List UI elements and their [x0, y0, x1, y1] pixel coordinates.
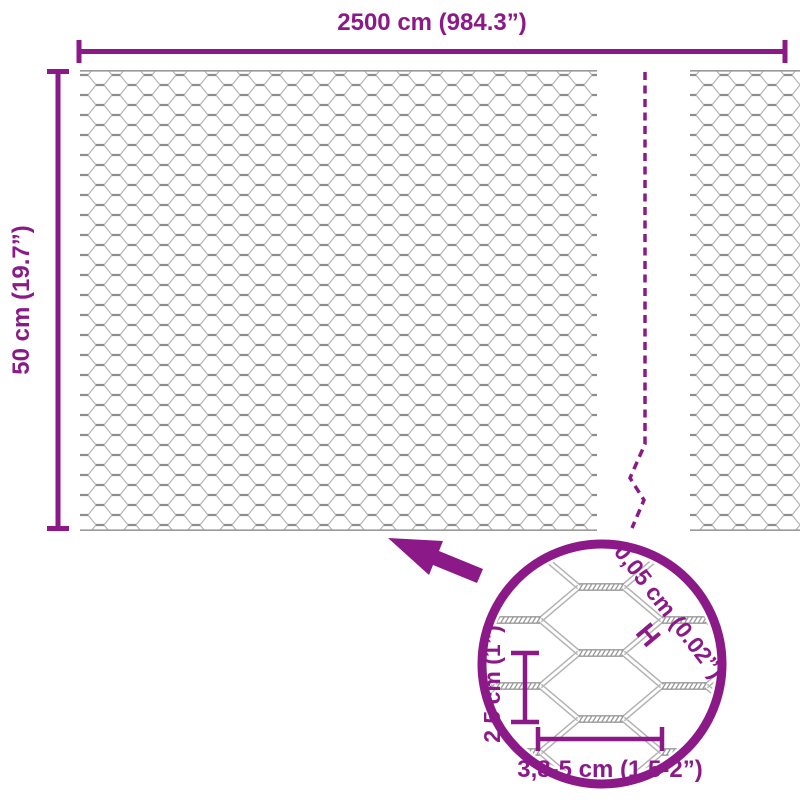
mesh-pitch-vertical-label: 2,5 cm (1”) [479, 625, 505, 743]
height-dimension-line [47, 71, 69, 529]
mesh-panel-continuation [690, 70, 800, 531]
width-dimension-label: 2500 cm (984.3”) [337, 9, 526, 36]
magnifier-arrow [388, 538, 483, 583]
magnifier-circle [482, 544, 722, 784]
mesh-panel-main [80, 70, 597, 531]
diagram-canvas: 2500 cm (984.3”) 50 cm (19.7”) 0,05 cm (… [0, 0, 800, 800]
height-dimension-label: 50 cm (19.7”) [8, 225, 35, 374]
mesh-pitch-horizontal-label: 3,8-5 cm (1.5-2”) [517, 756, 702, 783]
break-line [630, 72, 645, 528]
wire-mesh-dimension-diagram: 2500 cm (984.3”) 50 cm (19.7”) 0,05 cm (… [0, 0, 800, 800]
width-dimension-line [79, 40, 785, 63]
